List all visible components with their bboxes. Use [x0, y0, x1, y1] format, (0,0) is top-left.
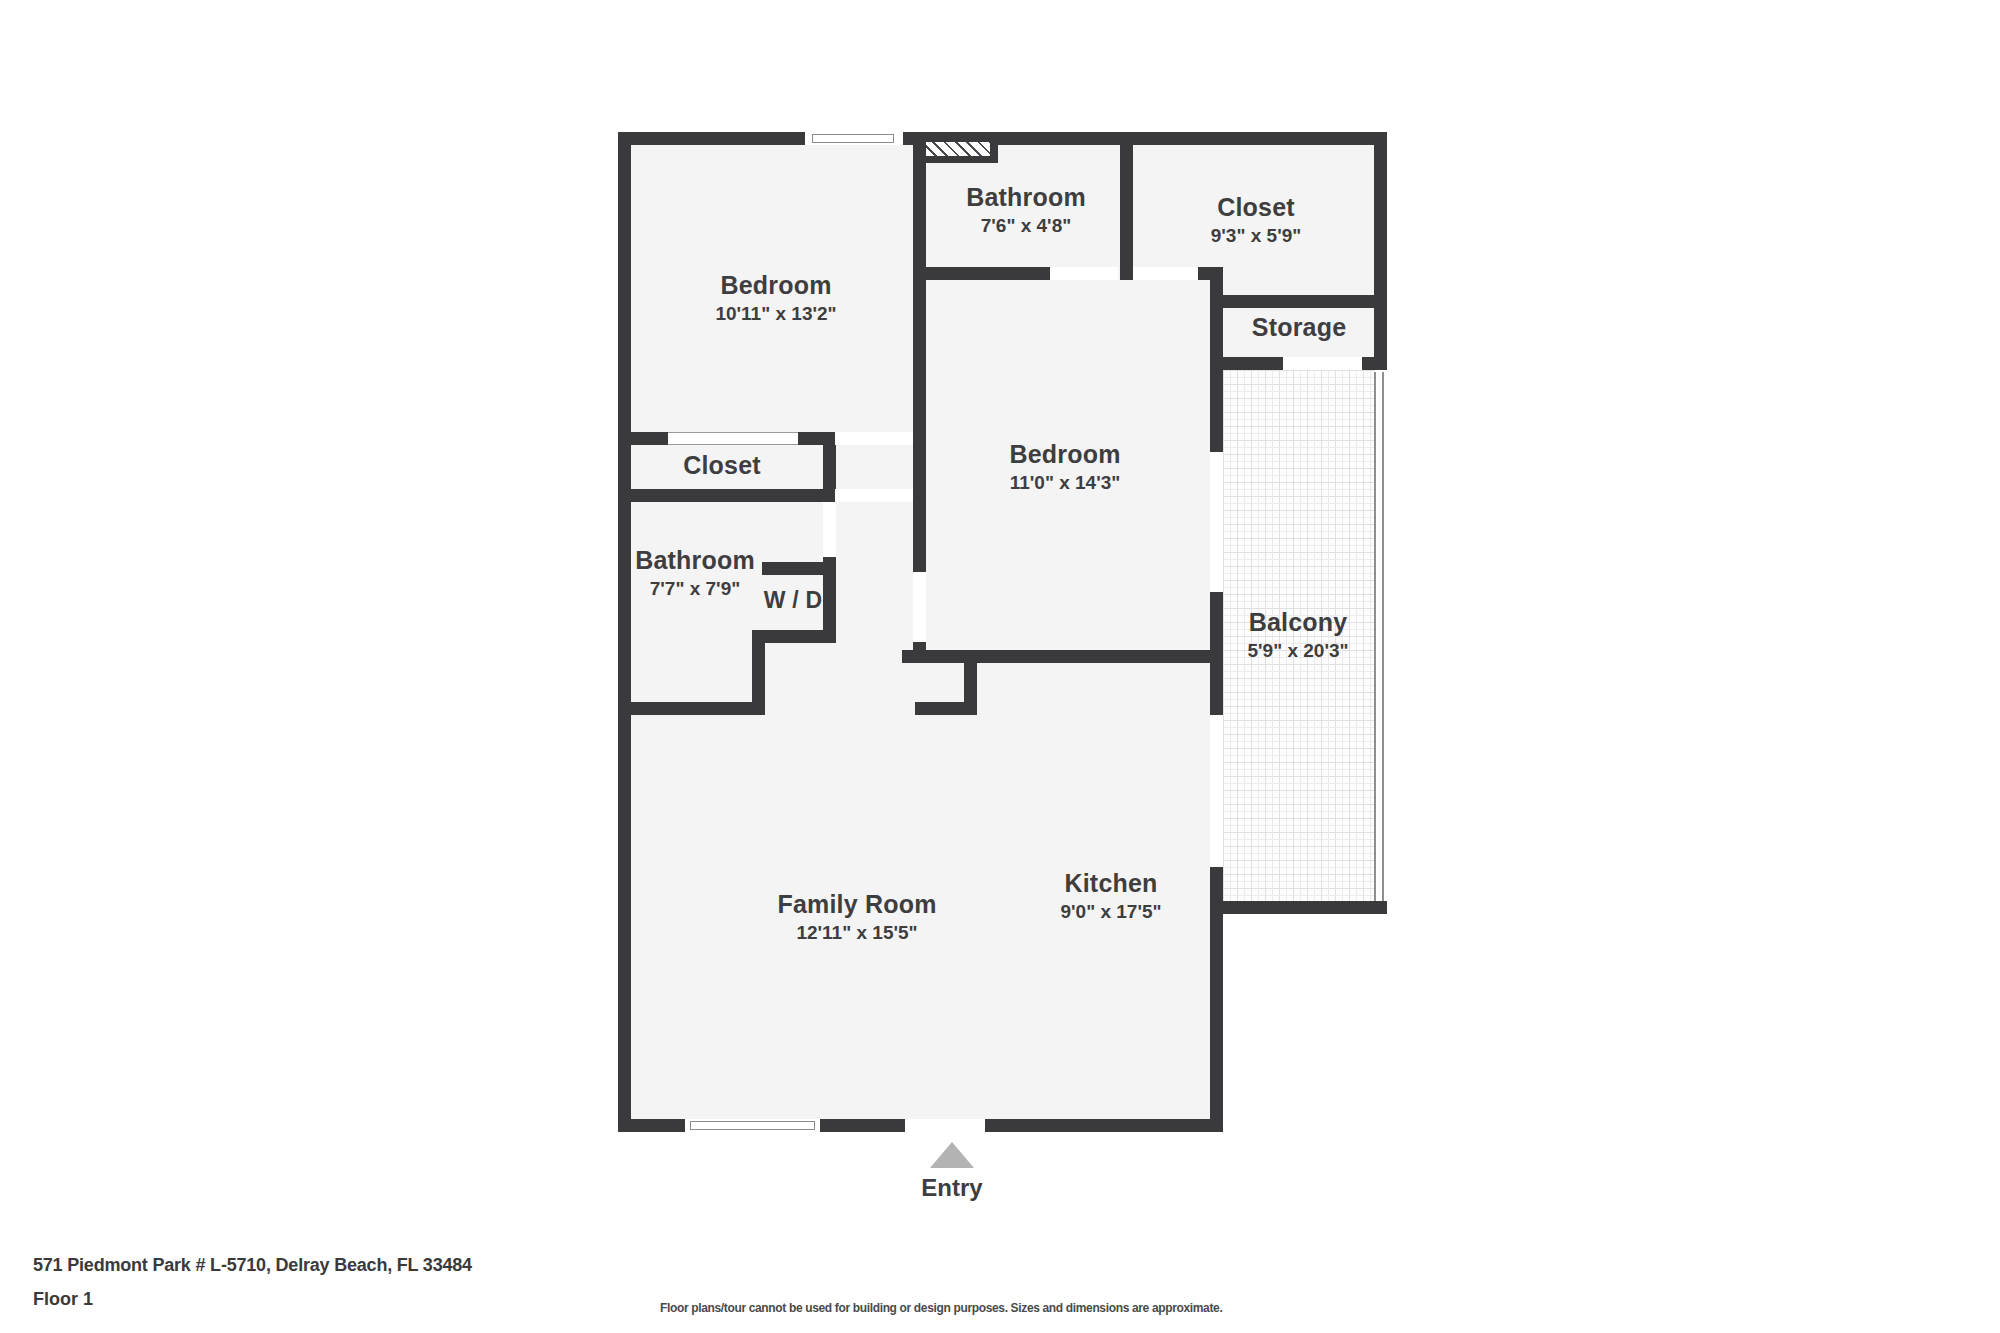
room-name: Bedroom — [1009, 441, 1120, 467]
door-opening — [913, 572, 926, 642]
wall — [618, 702, 758, 715]
room-label-closet-2: Closet — [683, 452, 761, 478]
floor-number-text: Floor 1 — [33, 1289, 93, 1310]
room-name: Closet — [1211, 194, 1301, 220]
room-dims: 10'11" x 13'2" — [715, 303, 836, 325]
wall — [985, 1119, 1223, 1132]
wall — [618, 1119, 685, 1132]
room-dims: 5'9" x 20'3" — [1247, 640, 1348, 662]
wall — [618, 132, 805, 145]
room-name: Bathroom — [635, 547, 755, 573]
balcony-door-opening — [1283, 357, 1362, 370]
room-label-family-room: Family Room 12'11" x 15'5" — [777, 891, 936, 944]
room-dims: 9'0" x 17'5" — [1060, 901, 1161, 923]
room-label-kitchen: Kitchen 9'0" x 17'5" — [1060, 870, 1161, 923]
door-opening — [1050, 267, 1118, 280]
disclaimer-text: Floor plans/tour cannot be used for buil… — [660, 1301, 1160, 1315]
room-name: W / D — [764, 588, 823, 612]
room-name: Closet — [683, 452, 761, 478]
floor-plan-page: Bedroom 10'11" x 13'2" Bathroom 7'6" x 4… — [0, 0, 2000, 1333]
room-label-closet-1: Closet 9'3" x 5'9" — [1211, 194, 1301, 247]
door-opening — [835, 489, 913, 502]
address-text: 571 Piedmont Park # L-5710, Delray Beach… — [33, 1255, 472, 1276]
window-icon — [812, 134, 894, 143]
wall — [1374, 132, 1387, 370]
wall — [762, 562, 836, 575]
wall — [618, 432, 668, 445]
room-dims: 7'6" x 4'8" — [966, 215, 1086, 237]
room-dims: 7'7" x 7'9" — [635, 578, 755, 600]
wall — [902, 650, 1222, 663]
wall — [1210, 267, 1223, 452]
room-label-bathroom-1: Bathroom 7'6" x 4'8" — [966, 184, 1086, 237]
room-label-bedroom-1: Bedroom 10'11" x 13'2" — [715, 272, 836, 325]
door-opening — [835, 432, 913, 445]
door-opening — [823, 502, 836, 557]
wall — [915, 702, 977, 715]
wall — [915, 267, 1050, 280]
wall — [820, 1119, 905, 1132]
room-name: Bathroom — [966, 184, 1086, 210]
closet-opening-icon — [668, 432, 798, 445]
door-opening — [1133, 267, 1198, 280]
room-label-storage: Storage — [1252, 314, 1346, 340]
balcony-railing — [1374, 372, 1384, 902]
entry-label: Entry — [921, 1174, 982, 1202]
room-name: Balcony — [1247, 609, 1348, 635]
entry-arrow-icon — [930, 1142, 974, 1168]
room-dims: 11'0" x 14'3" — [1009, 472, 1120, 494]
room-dims: 12'11" x 15'5" — [777, 922, 936, 944]
window-icon — [690, 1121, 815, 1130]
wall — [1213, 901, 1387, 914]
room-label-bedroom-2: Bedroom 11'0" x 14'3" — [1009, 441, 1120, 494]
room-name: Kitchen — [1060, 870, 1161, 896]
room-dims: 9'3" x 5'9" — [1211, 225, 1301, 247]
hatched-area-icon — [918, 142, 998, 163]
room-label-washer-dryer: W / D — [764, 588, 823, 612]
room-label-balcony: Balcony 5'9" x 20'3" — [1247, 609, 1348, 662]
wall — [1210, 295, 1387, 308]
room-name: Bedroom — [715, 272, 836, 298]
room-name: Storage — [1252, 314, 1346, 340]
wall — [618, 489, 835, 502]
window-opening — [1210, 715, 1223, 867]
wall — [1120, 132, 1133, 280]
wall — [913, 132, 926, 572]
entry-door-opening — [905, 1119, 985, 1132]
wall — [618, 132, 631, 1132]
room-name: Family Room — [777, 891, 936, 917]
room-label-bathroom-2: Bathroom 7'7" x 7'9" — [635, 547, 755, 600]
window-opening — [1210, 452, 1223, 592]
